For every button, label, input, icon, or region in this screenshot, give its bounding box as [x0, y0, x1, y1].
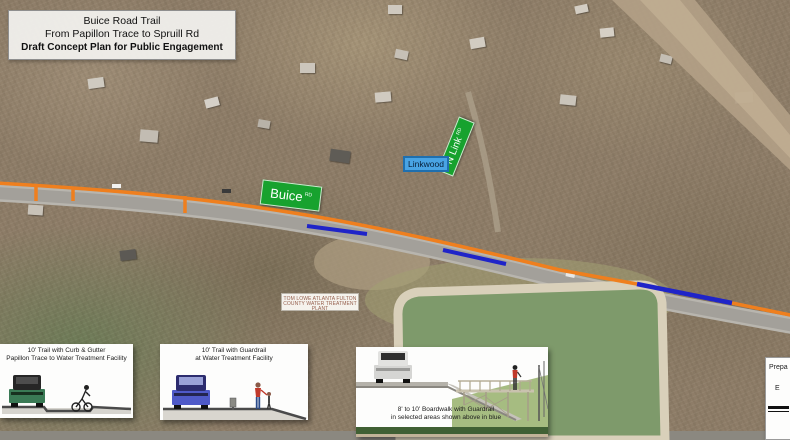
water-treatment-plant-label: TOM LOWE ATLANTA FULTON COUNTY WATER TRE… — [281, 293, 359, 311]
panel2-caption: 10' Trail with Guardrail at Water Treatm… — [160, 344, 308, 363]
prepared-by-panel: Prepa E — [765, 357, 790, 440]
cross-section-panel-curb-gutter: 10' Trail with Curb & Gutter Papillon Tr… — [0, 344, 133, 418]
street-suffix: RD — [455, 127, 463, 136]
cyclist-figure — [72, 385, 92, 411]
panel1-illustration — [0, 363, 133, 418]
cleared-strip — [612, 0, 790, 170]
plant-label-line-2: COUNTY WATER TREATMENT PLANT — [282, 302, 358, 312]
prepared-by-text: Prepa — [769, 364, 790, 371]
panel3-illustration — [356, 347, 548, 437]
cross-section-panel-guardrail: 10' Trail with Guardrail at Water Treatm… — [160, 344, 308, 420]
pickup-truck-green — [9, 375, 45, 407]
scale-bar — [768, 406, 789, 409]
street-suffix: RD — [305, 191, 313, 198]
pedestrian-figures — [255, 382, 271, 409]
pickup-truck-silver — [374, 351, 412, 383]
title-line-3: Draft Concept Plan for Public Engagement — [11, 41, 233, 54]
cross-section-panel-boardwalk: 8' to 10' Boardwalk with Guardrail in se… — [356, 347, 548, 437]
side-road — [468, 92, 498, 232]
title-box: Buice Road Trail From Papillon Trace to … — [8, 10, 236, 60]
linkwood-label: Linkwood — [403, 156, 449, 172]
panel3-caption: 8' to 10' Boardwalk with Guardrail in se… — [364, 403, 528, 422]
scale-bar-line — [768, 411, 789, 412]
street-name: Buice — [269, 186, 303, 205]
title-line-1: Buice Road Trail — [11, 15, 233, 28]
panel2-caption-line-2: at Water Treatment Facility — [160, 355, 308, 363]
panel1-caption-line-1: 10' Trail with Curb & Gutter — [0, 347, 133, 355]
pickup-truck-blue — [172, 375, 210, 409]
panel2-illustration — [160, 363, 308, 420]
title-line-2: From Papillon Trace to Spruill Rd — [11, 28, 233, 41]
car — [222, 189, 231, 193]
panel2-caption-line-1: 10' Trail with Guardrail — [160, 347, 308, 355]
panel1-caption: 10' Trail with Curb & Gutter Papillon Tr… — [0, 344, 133, 363]
car — [112, 184, 121, 188]
concept-plan-map: Buice Road Trail From Papillon Trace to … — [0, 0, 790, 440]
prepared-by-text-2: E — [775, 385, 790, 392]
panel3-caption-line-2: in selected areas shown above in blue — [364, 414, 528, 422]
panel3-caption-line-1: 8' to 10' Boardwalk with Guardrail — [364, 406, 528, 414]
panel1-caption-line-2: Papillon Trace to Water Treatment Facili… — [0, 355, 133, 363]
